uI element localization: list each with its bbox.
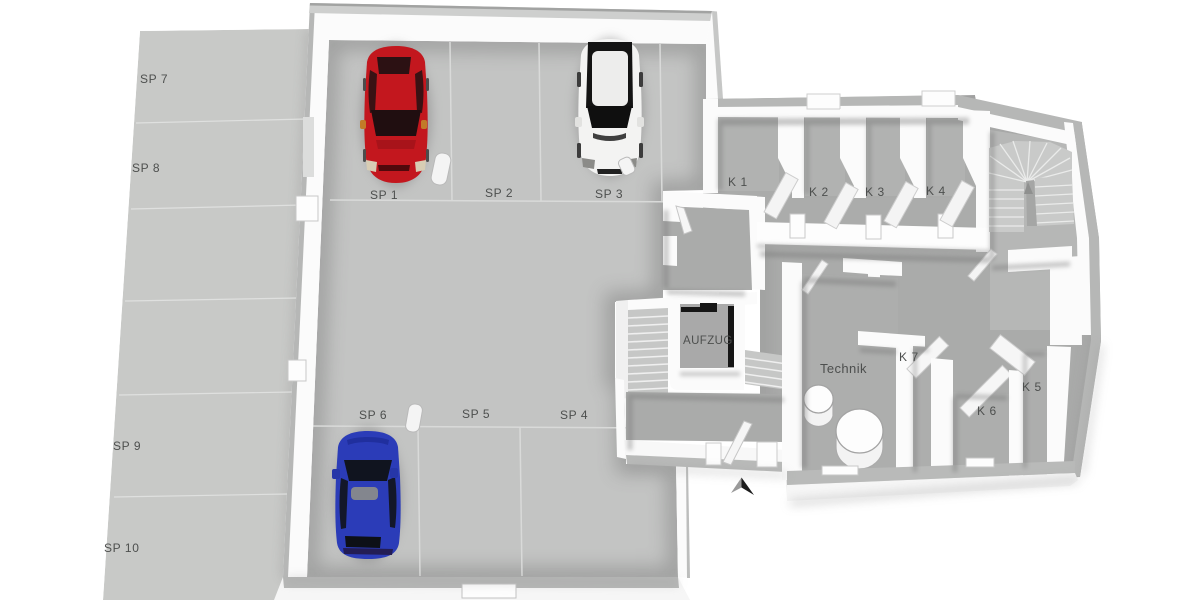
svg-text:K 4: K 4	[926, 184, 946, 198]
svg-text:SP 5: SP 5	[462, 407, 490, 421]
svg-text:K 5: K 5	[1022, 380, 1042, 394]
svg-text:SP 10: SP 10	[104, 541, 139, 555]
svg-text:Technik: Technik	[820, 361, 867, 376]
svg-text:SP 6: SP 6	[359, 408, 387, 422]
svg-text:K 7: K 7	[899, 350, 919, 364]
svg-text:K 1: K 1	[728, 175, 748, 189]
svg-text:K 6: K 6	[977, 404, 997, 418]
svg-text:SP 8: SP 8	[132, 161, 160, 175]
svg-text:SP 4: SP 4	[560, 408, 588, 422]
svg-text:AUFZUG: AUFZUG	[683, 335, 733, 347]
svg-text:SP 2: SP 2	[485, 186, 513, 200]
svg-text:SP 3: SP 3	[595, 187, 623, 201]
svg-text:SP 1: SP 1	[370, 188, 398, 202]
svg-text:K 2: K 2	[809, 185, 829, 199]
svg-text:K 3: K 3	[865, 185, 885, 199]
svg-text:SP 7: SP 7	[140, 72, 168, 86]
svg-text:SP 9: SP 9	[113, 439, 141, 453]
